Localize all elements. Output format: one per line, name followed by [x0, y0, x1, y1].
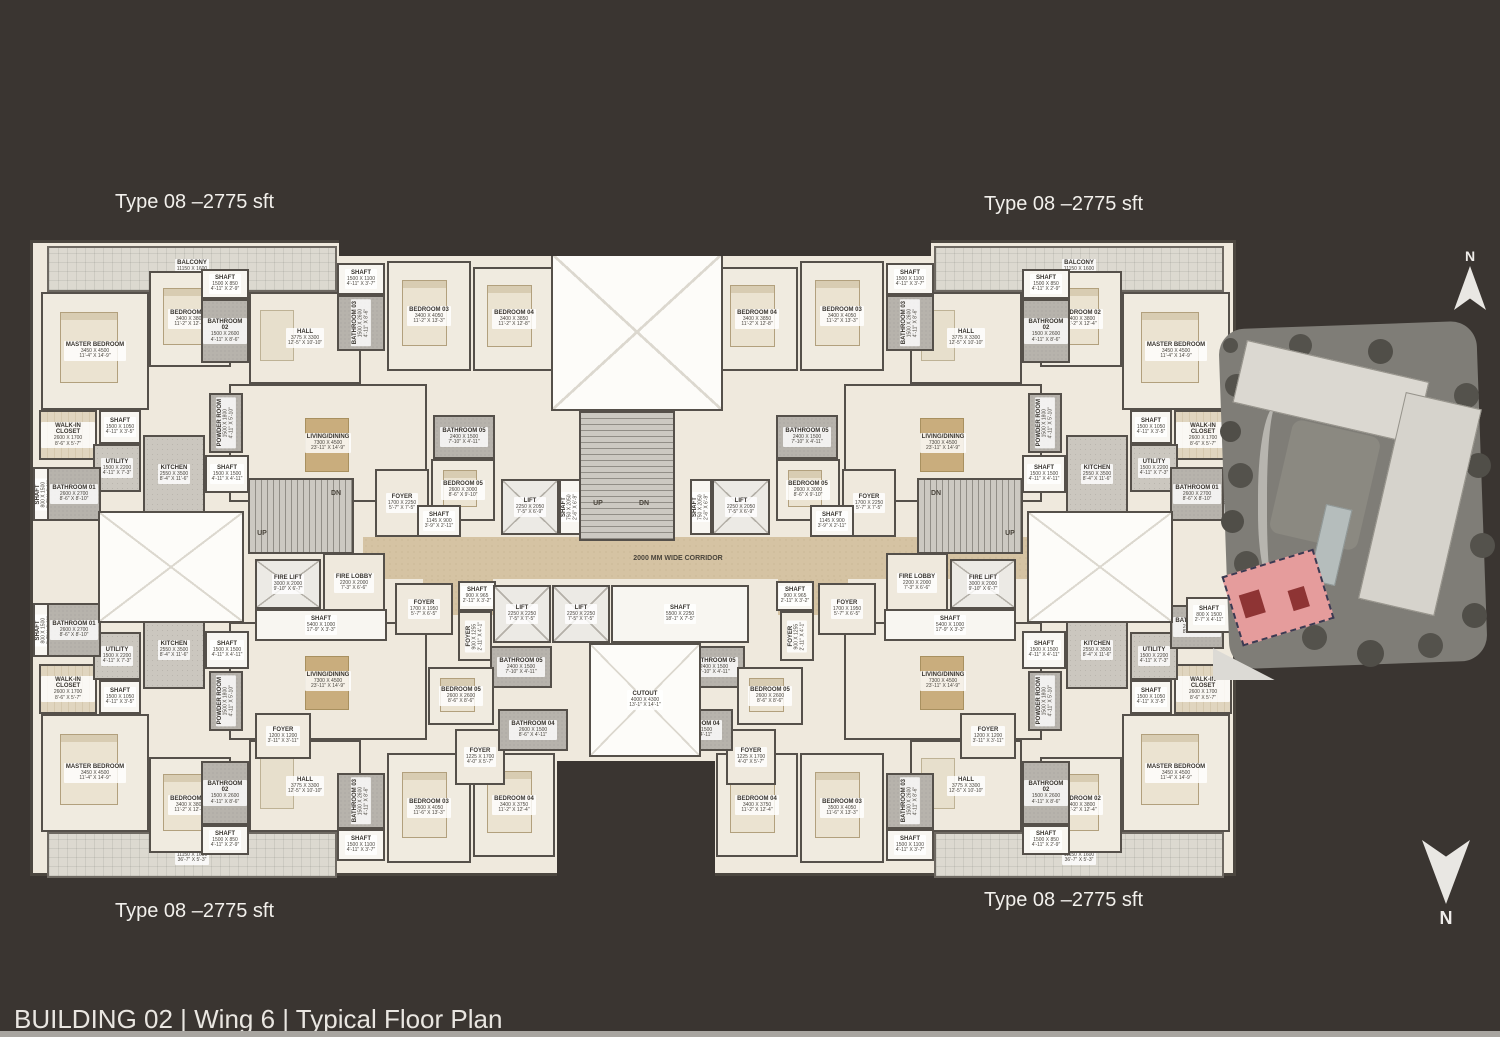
room-foyer: FOYER900 X 12552'-11" X 4'-1"	[458, 611, 492, 661]
plan-text-2000-mm-wide-corridor: 2000 MM WIDE CORRIDOR	[578, 551, 778, 565]
room-bathroom-04: BATHROOM 042600 X 15008'-6" X 4'-11"	[498, 709, 568, 751]
room-shaft: SHAFT900 X 9652'-11" X 3'-2"	[458, 581, 496, 611]
room-bathroom-03: BATHROOM 031500 X 26004'-11" X 8'-6"	[337, 773, 385, 829]
room-stairs	[579, 411, 675, 541]
room-shaft: SHAFT750 X 20502'-6" X 6'-9"	[690, 479, 712, 535]
room-void	[98, 511, 244, 623]
room-shaft: SHAFT1500 X 10504'-11" X 3'-5"	[99, 680, 141, 714]
room-shaft: SHAFT800 X 15002'-7" X 4'-11"	[33, 467, 49, 521]
site-trees	[1223, 338, 1238, 353]
room-shaft: SHAFT1500 X 10504'-11" X 3'-5"	[99, 410, 141, 444]
room-bathroom-02: BATHROOM 021500 X 26004'-11" X 8'-6"	[1022, 761, 1070, 825]
room-walk-in-closet: WALK-IN CLOSET2600 X 17008'-6" X 5'-7"	[39, 410, 97, 460]
room-bedroom-05: BEDROOM 052600 X 26008'-6" X 8'-6"	[428, 667, 494, 725]
room-bathroom-05: BATHROOM 052400 X 15007'-10" X 4'-11"	[490, 646, 552, 688]
site-key-plan	[1213, 318, 1493, 680]
room-shaft: SHAFT1145 X 9003'-9" X 2'-11"	[810, 505, 854, 537]
floor-plan-page: BALCONY11150 X 160036'-7" X 5'-3"MASTER …	[0, 0, 1500, 1037]
room-bathroom-05: BATHROOM 052400 X 15007'-10" X 4'-11"	[433, 415, 495, 459]
room-shaft: SHAFT1500 X 10504'-11" X 3'-5"	[1130, 410, 1172, 444]
room-powder-room: POWDER ROOM1500 X 18004'-11" X 5'-10"	[209, 393, 243, 453]
room-shaft: SHAFT5500 X 225018'-1" X 7'-5"	[611, 585, 749, 643]
room-shaft: SHAFT1500 X 8504'-11" X 2'-9"	[1022, 269, 1070, 299]
room-bedroom-03: BEDROOM 033400 X 405011'-2" X 13'-3"	[387, 261, 471, 371]
room-shaft: SHAFT1500 X 8504'-11" X 2'-9"	[1022, 825, 1070, 855]
room-powder-room: POWDER ROOM1500 X 18004'-11" X 5'-10"	[1028, 671, 1062, 731]
room-master-bedroom: MASTER BEDROOM3450 X 450011'-4" X 14'-9"	[1122, 714, 1230, 832]
type-label-bottom-right: Type 08 –2775 sft	[984, 889, 1143, 912]
room-shaft: SHAFT1500 X 15004'-11" X 4'-11"	[205, 455, 249, 493]
room-foyer: FOYER1700 X 19505'-7" X 6'-5"	[818, 583, 876, 635]
room-shaft: SHAFT1500 X 15004'-11" X 4'-11"	[1022, 631, 1066, 669]
room-shaft: SHAFT5400 X 100017'-9" X 3'-3"	[884, 609, 1016, 641]
room-foyer: FOYER1700 X 19505'-7" X 6'-5"	[395, 583, 453, 635]
type-label-bottom-left: Type 08 –2775 sft	[115, 900, 274, 923]
plan-notch-top	[339, 240, 931, 256]
room-shaft: SHAFT1500 X 11004'-11" X 3'-7"	[337, 263, 385, 295]
room-foyer: FOYER1200 X 12003'-11" X 3'-11"	[960, 713, 1016, 759]
north-arrow-top: N	[1448, 248, 1492, 318]
room-bathroom-03: BATHROOM 031500 X 26004'-11" X 8'-6"	[886, 295, 934, 351]
room-lift: LIFT2250 X 20507'-5" X 6'-9"	[712, 479, 770, 535]
north-up-icon	[1454, 266, 1486, 310]
type-label-top-right: Type 08 –2775 sft	[984, 193, 1143, 216]
plan-text-up: UP	[251, 527, 273, 539]
room-fire-lift: FIRE LIFT3000 X 20009'-10" X 6'-7"	[950, 559, 1016, 609]
room-shaft: SHAFT1145 X 9003'-9" X 2'-11"	[417, 505, 461, 537]
room-shaft: SHAFT5400 X 100017'-9" X 3'-3"	[255, 609, 387, 641]
room-bathroom-03: BATHROOM 031500 X 26004'-11" X 8'-6"	[886, 773, 934, 829]
plan-text-dn: DN	[925, 487, 947, 499]
room-shaft: SHAFT1500 X 10504'-11" X 3'-5"	[1130, 680, 1172, 714]
room-foyer: FOYER900 X 12552'-11" X 4'-1"	[780, 611, 814, 661]
room-lift: LIFT2250 X 22507'-5" X 7'-5"	[552, 585, 610, 643]
room-kitchen: KITCHEN2550 X 35008'-4" X 11'-6"	[143, 435, 205, 513]
room-bathroom-01: BATHROOM 012600 X 27008'-6" X 8'-10"	[47, 603, 101, 657]
room-bedroom-05: BEDROOM 052600 X 26008'-6" X 8'-6"	[737, 667, 803, 725]
plan-text-dn: DN	[325, 487, 347, 499]
room-bathroom-05: BATHROOM 052400 X 15007'-10" X 4'-11"	[776, 415, 838, 459]
north-label-bottom: N	[1418, 908, 1474, 929]
room-shaft: SHAFT900 X 9652'-11" X 3'-2"	[776, 581, 814, 611]
room-lift: LIFT2250 X 22507'-5" X 7'-5"	[493, 585, 551, 643]
room-powder-room: POWDER ROOM1500 X 18004'-11" X 5'-10"	[209, 671, 243, 731]
north-down-icon	[1422, 840, 1470, 904]
room-foyer: FOYER1225 X 17004'-0" X 5'-7"	[726, 729, 776, 785]
room-shaft: SHAFT1500 X 15004'-11" X 4'-11"	[1022, 455, 1066, 493]
room-shaft: SHAFT1500 X 8504'-11" X 2'-9"	[201, 269, 249, 299]
room-master-bedroom: MASTER BEDROOM3450 X 450011'-4" X 14'-9"	[41, 292, 149, 410]
room-fire-lobby: FIRE LOBBY2200 X 20007'-3" X 6'-6"	[323, 553, 385, 613]
room-kitchen: KITCHEN2550 X 35008'-4" X 11'-6"	[1066, 435, 1128, 513]
type-label-top-left: Type 08 –2775 sft	[115, 191, 274, 214]
room-bathroom-03: BATHROOM 031500 X 26004'-11" X 8'-6"	[337, 295, 385, 351]
room-fire-lobby: FIRE LOBBY2200 X 20007'-3" X 6'-6"	[886, 553, 948, 613]
room-master-bedroom: MASTER BEDROOM3450 X 450011'-4" X 14'-9"	[41, 714, 149, 832]
room-cutout: CUTOUT4000 X 430013'-1" X 14'-1"	[589, 643, 701, 757]
plan-text-up: UP	[999, 527, 1021, 539]
room-shaft: SHAFT1500 X 8504'-11" X 2'-9"	[201, 825, 249, 855]
room-bedroom-03: BEDROOM 033400 X 405011'-2" X 13'-3"	[800, 261, 884, 371]
room-void	[1027, 511, 1173, 623]
north-arrow-bottom: N	[1418, 840, 1474, 938]
north-label-top: N	[1448, 248, 1492, 264]
room-foyer: FOYER1200 X 12003'-11" X 3'-11"	[255, 713, 311, 759]
room-powder-room: POWDER ROOM1500 X 18004'-11" X 5'-10"	[1028, 393, 1062, 453]
plan-text-dn: DN	[633, 497, 655, 509]
room-bedroom-04: BEDROOM 043400 X 385011'-2" X 12'-8"	[473, 267, 555, 371]
room-shaft: SHAFT1500 X 11004'-11" X 3'-7"	[337, 829, 385, 861]
floor-plan: BALCONY11150 X 160036'-7" X 5'-3"MASTER …	[30, 240, 1236, 876]
plan-notch-bottom	[557, 761, 715, 882]
room-bathroom-02: BATHROOM 021500 X 26004'-11" X 8'-6"	[201, 299, 249, 363]
room-bathroom-02: BATHROOM 021500 X 26004'-11" X 8'-6"	[1022, 299, 1070, 363]
room-bathroom-01: BATHROOM 012600 X 27008'-6" X 8'-10"	[47, 467, 101, 521]
room-fire-lift: FIRE LIFT3000 X 20009'-10" X 6'-7"	[255, 559, 321, 609]
bottom-bar	[0, 1031, 1500, 1037]
room-shaft: SHAFT1500 X 11004'-11" X 3'-7"	[886, 829, 934, 861]
room-void	[551, 253, 723, 411]
room-shaft: SHAFT1500 X 15004'-11" X 4'-11"	[205, 631, 249, 669]
room-shaft: SHAFT800 X 15002'-7" X 4'-11"	[33, 603, 49, 657]
room-shaft: SHAFT1500 X 11004'-11" X 3'-7"	[886, 263, 934, 295]
room-lift: LIFT2250 X 20507'-5" X 6'-9"	[501, 479, 559, 535]
room-shaft: SHAFT750 X 20502'-6" X 6'-9"	[559, 479, 581, 535]
room-bathroom-02: BATHROOM 021500 X 26004'-11" X 8'-6"	[201, 761, 249, 825]
room-bedroom-03: BEDROOM 033500 X 405011'-6" X 13'-3"	[800, 753, 884, 863]
room-walk-in-closet: WALK-IN CLOSET2600 X 17008'-6" X 5'-7"	[39, 664, 97, 714]
plan-text-up: UP	[587, 497, 609, 509]
room-bedroom-04: BEDROOM 043400 X 385011'-2" X 12'-8"	[716, 267, 798, 371]
